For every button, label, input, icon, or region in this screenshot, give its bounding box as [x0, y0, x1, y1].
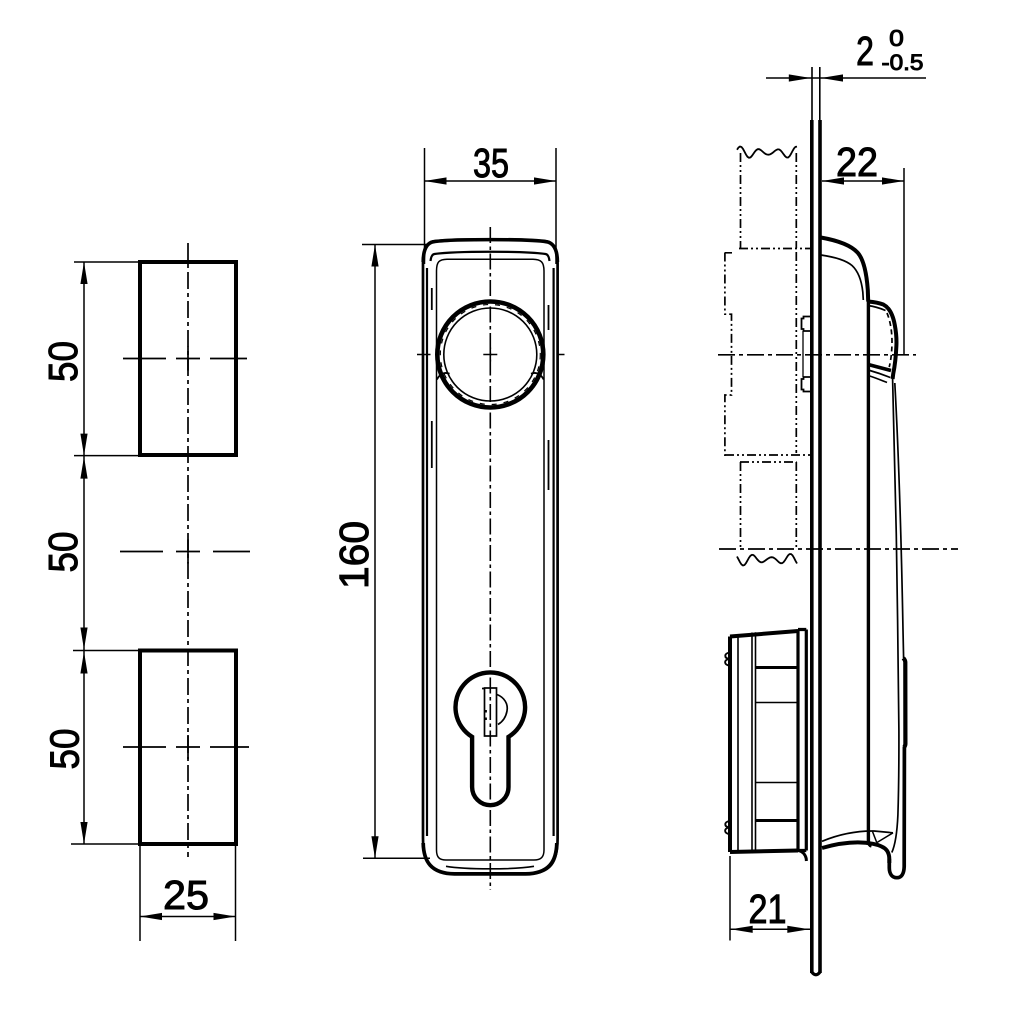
svg-text:50: 50 [42, 729, 88, 770]
svg-text:-0.5: -0.5 [882, 50, 924, 75]
svg-text:22: 22 [836, 139, 878, 185]
svg-text:35: 35 [473, 140, 509, 186]
svg-text:0: 0 [889, 27, 904, 52]
svg-text:2: 2 [856, 28, 874, 74]
svg-text:50: 50 [40, 341, 86, 382]
svg-text:50: 50 [40, 532, 86, 573]
svg-text:25: 25 [163, 872, 209, 918]
svg-text:160: 160 [331, 521, 377, 589]
svg-text:21: 21 [749, 886, 787, 932]
